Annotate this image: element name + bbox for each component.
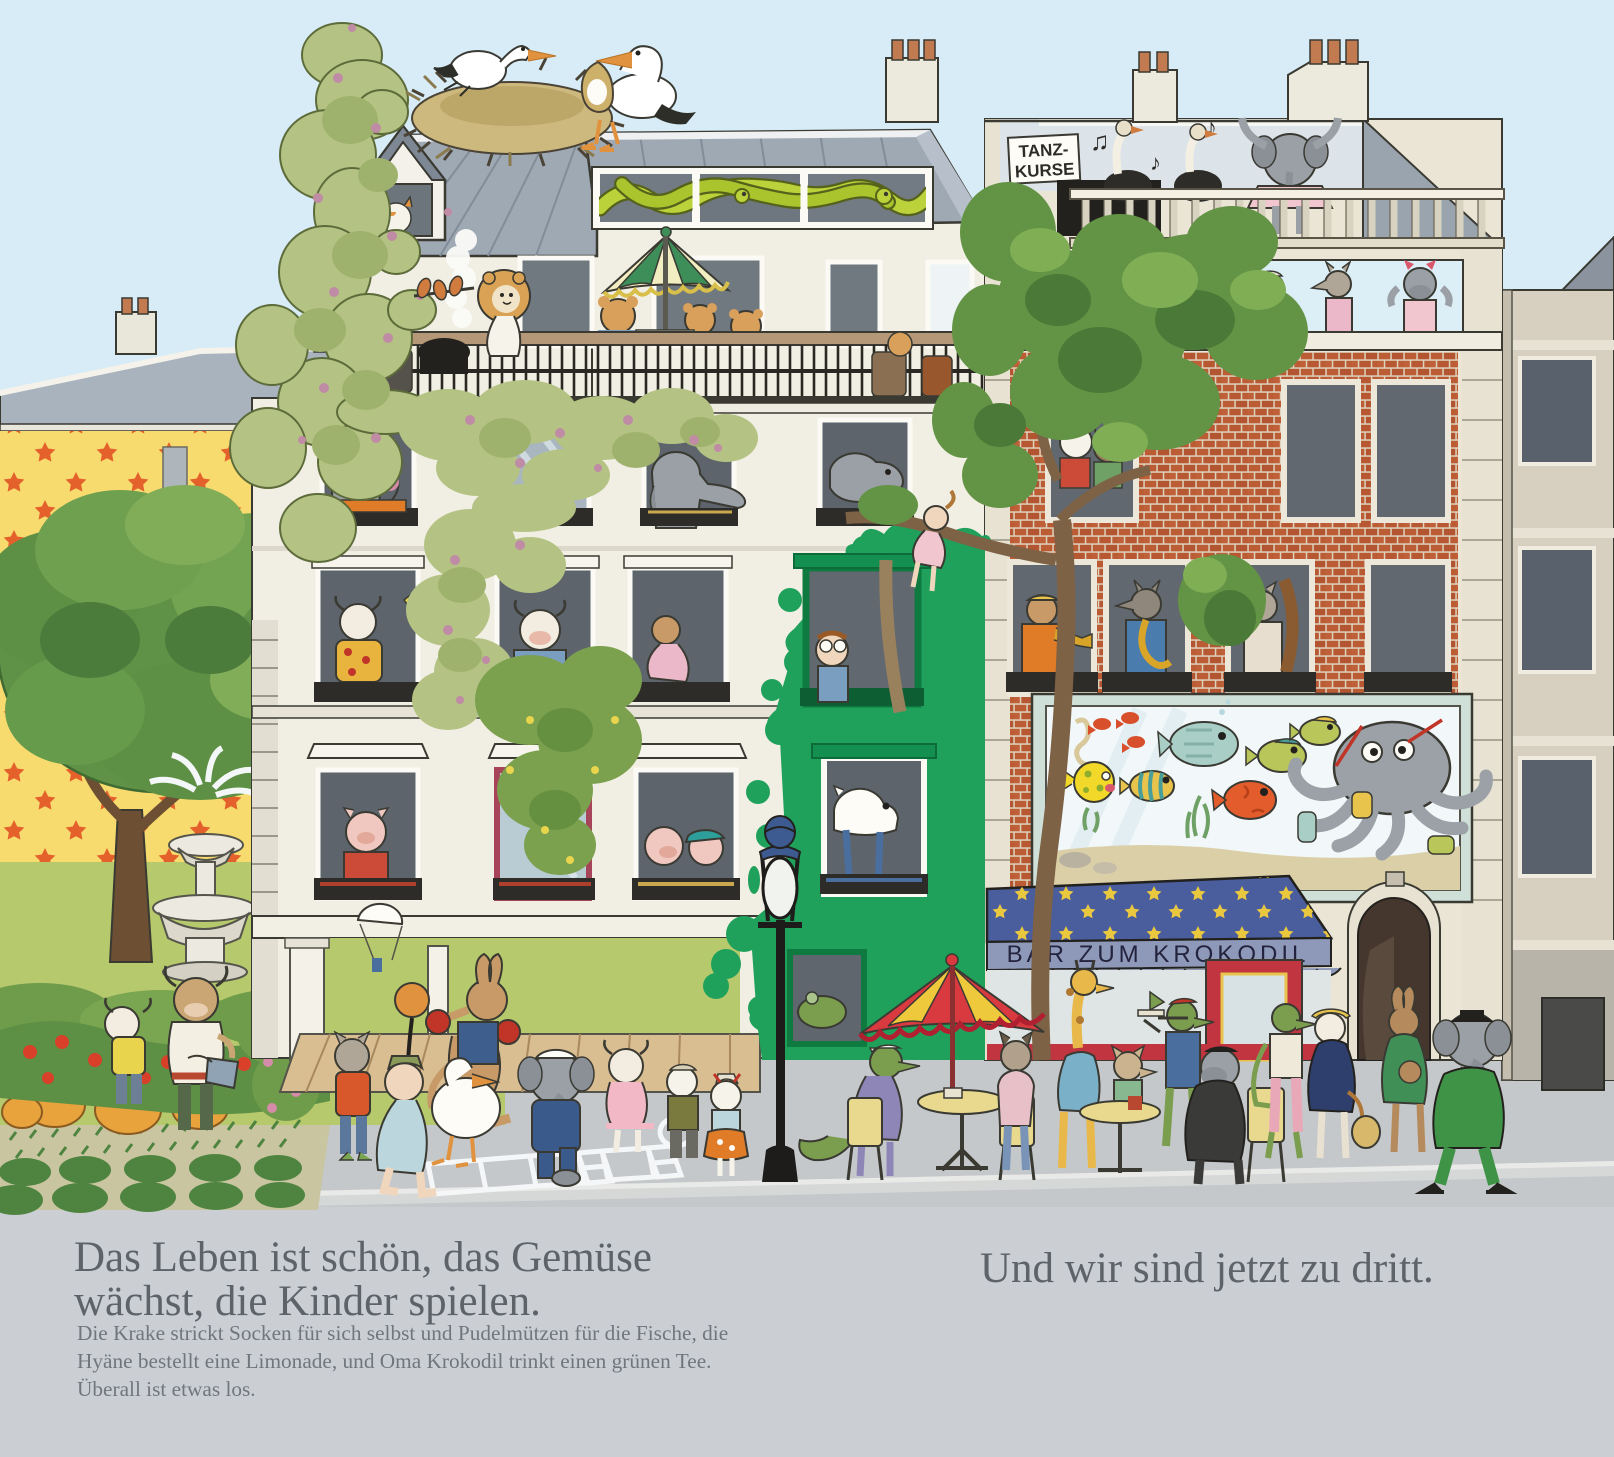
- svg-text:KURSE: KURSE: [1014, 159, 1074, 181]
- svg-text:Hyäne bestellt eine Limonade,: Hyäne bestellt eine Limonade, und Oma Kr…: [77, 1349, 711, 1373]
- svg-text:♫: ♫: [1090, 126, 1110, 156]
- svg-text:Überall ist etwas los.: Überall ist etwas los.: [77, 1377, 256, 1401]
- svg-text:TANZ-: TANZ-: [1018, 140, 1069, 162]
- svg-text:Das Leben ist schön, das Gemüs: Das Leben ist schön, das Gemüse: [74, 1234, 652, 1281]
- svg-text:♪: ♪: [1150, 150, 1161, 175]
- svg-text:Die Krake strickt Socken für s: Die Krake strickt Socken für sich selbst…: [77, 1321, 728, 1345]
- svg-text:Und wir sind jetzt zu dritt.: Und wir sind jetzt zu dritt.: [980, 1245, 1434, 1292]
- svg-text:wächst, die Kinder spielen.: wächst, die Kinder spielen.: [74, 1278, 541, 1325]
